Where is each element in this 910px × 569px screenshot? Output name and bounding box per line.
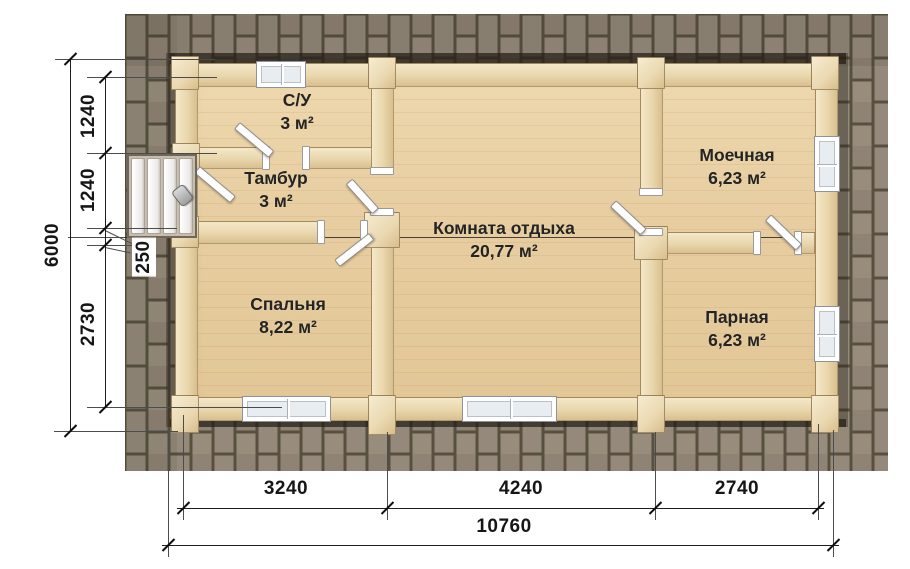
dim-label-10760: 10760 (476, 516, 531, 538)
door-jamb (317, 220, 325, 244)
porch-tread (147, 158, 161, 234)
wall-interior-su-bottom-b (306, 147, 372, 169)
dimension-line-left-total (70, 59, 71, 431)
dim-label-2730: 2730 (78, 302, 100, 346)
window-mullion (817, 164, 837, 167)
room-label-su: С/У 3 м² (280, 89, 313, 135)
extension-line (168, 427, 169, 557)
room-area: 6,23 м² (699, 167, 774, 190)
dim-label-2740: 2740 (715, 478, 759, 500)
dimension-line-bottom-total (162, 545, 839, 546)
room-label-komnata: Комната отдыха 20,77 м² (433, 217, 575, 263)
room-area: 6,23 м² (705, 329, 769, 352)
dimension-line-bottom-segments (177, 508, 824, 509)
wall-interior-su-bottom-a (198, 147, 268, 169)
dim-label-1240-a: 1240 (78, 94, 100, 138)
room-label-spalnya: Спальня 8,22 м² (250, 293, 326, 339)
room-label-tambur: Тамбур 3 м² (244, 167, 307, 213)
post-corner-bottom-right (811, 395, 839, 433)
post-bottom-2 (637, 395, 665, 433)
room-name: С/У (280, 89, 313, 112)
room-area: 3 м² (244, 190, 307, 213)
room-name: Моечная (699, 144, 774, 167)
room-name: Парная (705, 306, 769, 329)
extension-line (87, 228, 177, 229)
window-right-parnaya (814, 306, 840, 362)
post-corner-top-right (811, 56, 839, 90)
room-name: Комната отдыха (433, 217, 575, 240)
wall-exterior-right (815, 63, 838, 421)
eave-shadow-right (838, 53, 848, 427)
dim-label-1240-b: 1240 (78, 168, 100, 212)
post-corner-top-left (171, 56, 199, 90)
extension-line (87, 245, 137, 246)
wall-interior-moechnaya-left-upper (640, 87, 663, 193)
floor-plan-canvas: С/У 3 м² Тамбур 3 м² Моечная 6,23 м² Ком… (0, 0, 910, 569)
window-mullion (510, 399, 513, 419)
room-label-parnaya: Парная 6,23 м² (705, 306, 769, 352)
window-mullion (281, 64, 284, 85)
post-bottom-1 (368, 395, 396, 435)
window-bottom-spalnya (242, 396, 331, 422)
extension-line (54, 431, 178, 432)
post-corner-bottom-left (171, 395, 199, 433)
door-jamb (639, 188, 663, 196)
window-bottom-komnata (462, 396, 557, 422)
door-jamb (753, 231, 761, 255)
porch-tread (131, 158, 145, 234)
room-area: 8,22 м² (250, 316, 326, 339)
post-top-1 (368, 57, 396, 89)
window-top-su (256, 61, 306, 88)
room-name: Тамбур (244, 167, 307, 190)
room-label-moechnaya: Моечная 6,23 м² (699, 144, 774, 190)
dim-label-250: 250 (133, 238, 155, 275)
extension-line (55, 59, 215, 60)
dim-label-4240: 4240 (499, 478, 543, 500)
post-top-2 (637, 57, 665, 89)
dim-label-6000: 6000 (42, 223, 64, 267)
room-area: 20,77 м² (433, 240, 575, 263)
window-mullion (817, 334, 837, 337)
door-jamb (370, 167, 394, 175)
window-right-moechnaya (814, 136, 840, 192)
window-mullion (287, 399, 290, 419)
room-name: Спальня (250, 293, 326, 316)
extension-line (833, 430, 834, 557)
wall-interior-su-right-upper (371, 87, 394, 173)
room-area: 3 м² (280, 112, 313, 135)
extension-line (87, 407, 282, 408)
dim-label-3240: 3240 (264, 478, 308, 500)
